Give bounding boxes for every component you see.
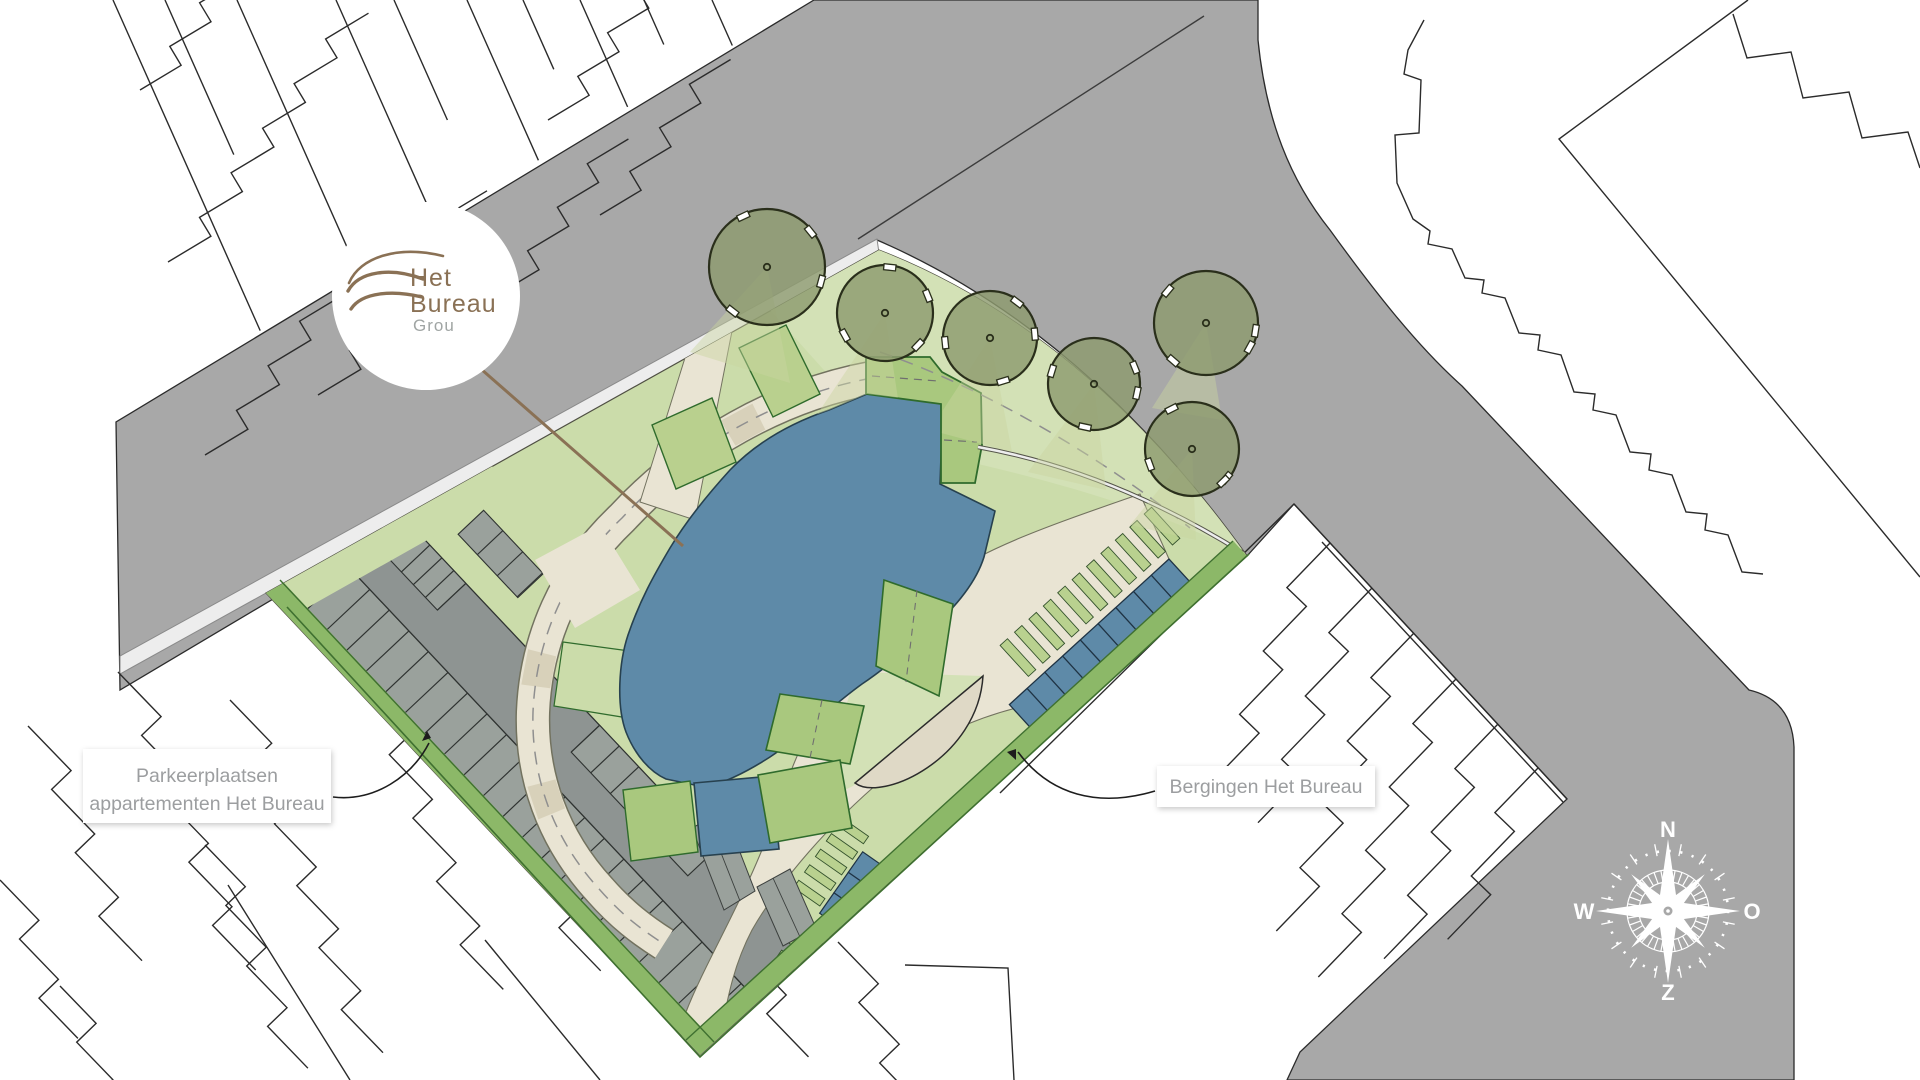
svg-text:W: W [1574, 899, 1595, 924]
svg-text:Bureau: Bureau [410, 290, 497, 318]
svg-text:O: O [1743, 899, 1760, 924]
svg-text:Z: Z [1661, 980, 1674, 1005]
svg-text:Het: Het [410, 264, 452, 292]
svg-text:Bergingen Het Bureau: Bergingen Het Bureau [1170, 776, 1363, 798]
svg-text:Grou: Grou [413, 316, 455, 335]
svg-text:Parkeerplaatsen: Parkeerplaatsen [136, 765, 278, 787]
svg-text:appartementen Het Bureau: appartementen Het Bureau [89, 793, 324, 815]
svg-text:N: N [1660, 817, 1676, 842]
